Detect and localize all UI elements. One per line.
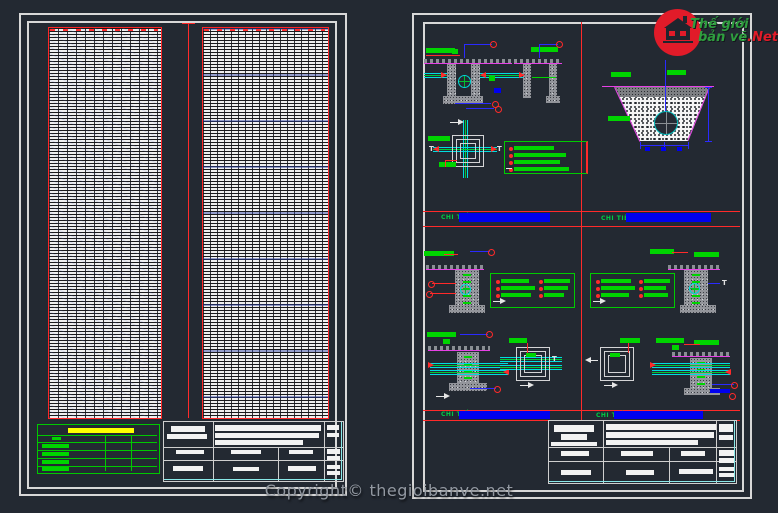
concrete-base (680, 305, 716, 313)
redacted-text (171, 426, 205, 432)
green-marker (526, 353, 536, 357)
rebar-dashes (464, 356, 472, 382)
t-symbol: T (722, 280, 727, 287)
blue-leader (665, 60, 666, 112)
redacted-text (327, 456, 340, 460)
legend-grid-line (38, 458, 157, 459)
table-header-red-text (204, 29, 325, 31)
white-arrow-stem (590, 360, 598, 361)
white-arrow-stem (506, 168, 512, 169)
redacted-text (327, 449, 340, 454)
red-leader (445, 160, 446, 167)
concrete-wall (447, 64, 456, 98)
pipe-opening (460, 284, 471, 295)
red-leader (672, 252, 688, 253)
blue-leader (464, 44, 492, 45)
red-circle-marker (490, 41, 497, 48)
redacted-text (327, 465, 340, 469)
pipe-lines (430, 370, 508, 375)
white-arrow (458, 119, 464, 125)
blue-dim-text (645, 147, 650, 151)
legend-dot (596, 287, 600, 291)
legend-green-bar (644, 279, 670, 283)
concrete-base (449, 383, 487, 391)
rebar-schedule-table-right (202, 27, 329, 419)
redacted-text (215, 440, 303, 445)
blue-marker (494, 88, 501, 93)
white-arrow-stem (604, 385, 612, 386)
legend-green-bar (544, 293, 564, 297)
red-leader (444, 254, 458, 255)
left-title-block (163, 421, 344, 482)
red-circle-marker (731, 382, 738, 389)
red-leader (432, 283, 456, 284)
legend-green-bar (514, 167, 569, 171)
red-arrowhead (725, 369, 731, 375)
redacted-text (719, 473, 734, 477)
blue-dim-tick (688, 142, 689, 149)
redacted-text (719, 467, 734, 471)
pipe-opening (458, 75, 471, 88)
legend-box (590, 273, 675, 308)
legend-box (504, 141, 588, 174)
blue-dim-text (677, 147, 682, 151)
blue-dim-text (661, 147, 666, 151)
title-block-grid (213, 422, 214, 481)
dimension-green-bar (427, 332, 456, 337)
title-block-grid (549, 447, 736, 448)
redacted-text (167, 434, 207, 439)
green-marker (610, 353, 620, 357)
white-arrow-stem (493, 301, 500, 302)
legend-green-bar (544, 279, 570, 283)
red-leader (684, 344, 700, 345)
blue-dim-tick (705, 141, 712, 142)
white-arrow-stem (450, 122, 458, 123)
red-circle-marker (729, 393, 736, 400)
caption-redacted-blue-bar (459, 213, 550, 222)
redacted-text (561, 434, 587, 440)
dimension-green-bar (509, 338, 527, 343)
dimension-green-bar (608, 116, 630, 121)
house-base (663, 41, 693, 43)
caption-redacted-blue-bar (459, 411, 550, 419)
logo-line2-text: bản vẽ (698, 30, 747, 45)
title-block-cyan-edge (164, 479, 342, 480)
legend-dot (539, 280, 543, 284)
legend-dot (509, 161, 513, 165)
redacted-text (215, 425, 321, 431)
title-block-grid (164, 460, 343, 461)
title-block-cyan-edge (734, 421, 735, 482)
manhole-plan-inner (460, 143, 476, 159)
dimension-green-bar (694, 252, 719, 257)
legend-dot (639, 287, 643, 291)
redacted-text (679, 469, 713, 474)
t-symbol: T (429, 146, 434, 153)
legend-green-bar (514, 146, 554, 150)
white-arrow (500, 298, 506, 304)
copyright-watermark: Copyright© thegioibanve.net (265, 481, 514, 500)
legend-grid-line (38, 442, 157, 443)
title-block-grid (164, 447, 343, 448)
house-icon (663, 16, 693, 46)
white-arrow (528, 382, 534, 388)
red-leader (527, 343, 528, 353)
legend-green-bar (601, 293, 629, 297)
redacted-text (606, 440, 698, 445)
white-arrow-stem (436, 396, 444, 397)
legend-dot (596, 280, 600, 284)
red-circle-marker (426, 291, 433, 298)
red-circle-marker (556, 41, 563, 48)
white-arrow (585, 357, 591, 363)
legend-green-bar (42, 460, 69, 464)
table-header-red-text (50, 29, 158, 31)
blue-leader (464, 44, 465, 58)
blue-marker (710, 389, 730, 393)
legend-green-bar (601, 279, 631, 283)
dimension-green-bar (656, 338, 684, 343)
manhole-plan-inner (608, 355, 626, 373)
title-block-grid (549, 461, 736, 462)
redacted-text (561, 451, 589, 456)
green-marker (672, 345, 679, 350)
band-red-line (423, 211, 740, 212)
redacted-text (176, 450, 204, 454)
pipe-opening (689, 283, 700, 294)
legend-box (490, 273, 575, 308)
pipe-lines (652, 363, 730, 368)
redacted-text (719, 435, 733, 440)
legend-grid-line (38, 435, 157, 436)
house-roof (664, 18, 692, 28)
redacted-text (561, 470, 591, 475)
t-symbol: T (497, 146, 502, 153)
red-leader (445, 160, 457, 161)
logo-suffix-text: .Net (747, 30, 778, 45)
concrete-base (546, 96, 560, 103)
dimension-green-bar (611, 72, 631, 77)
redacted-text (215, 433, 319, 438)
green-line (532, 77, 556, 78)
red-arrowhead (441, 72, 447, 78)
red-leader (430, 293, 456, 294)
legend-green-bar (52, 437, 61, 440)
blue-leader (466, 108, 494, 109)
red-tick (182, 23, 195, 24)
legend-green-bar (42, 467, 69, 471)
blue-leader (708, 283, 720, 284)
red-circle-marker (494, 386, 501, 393)
legend-dot (539, 294, 543, 298)
trench-top-line (602, 86, 714, 87)
dimension-green-bar (439, 162, 456, 167)
title-block-grid (716, 421, 717, 483)
t-symbol: T (552, 356, 557, 363)
legend-green-bar (644, 286, 666, 290)
blue-leader (455, 103, 491, 104)
red-leader (426, 55, 460, 56)
legend-dot (509, 147, 513, 151)
red-arrowhead (428, 362, 434, 368)
redacted-text (233, 467, 259, 471)
ground-line (424, 63, 512, 64)
title-block-grid (278, 447, 279, 481)
blue-leader (470, 388, 496, 389)
legend-green-bar (501, 279, 529, 283)
legend-dot (639, 280, 643, 284)
red-circle-marker (488, 249, 495, 256)
trench-pavement-band (613, 87, 712, 97)
blue-leader (470, 251, 490, 252)
blue-leader (460, 334, 488, 335)
rebar-schedule-table-left (48, 27, 162, 419)
house-window (669, 31, 675, 36)
blue-dimension (708, 87, 709, 142)
house-window (680, 31, 686, 36)
redacted-text (173, 466, 203, 471)
logo-text-line2: bản vẽ.Net (698, 31, 778, 44)
legend-green-bar (514, 160, 560, 164)
sheet-center-red-line (581, 22, 582, 420)
dimension-green-bar (650, 249, 674, 254)
green-marker (452, 49, 458, 54)
redacted-text (231, 450, 261, 454)
white-arrow-stem (520, 385, 528, 386)
green-marker (489, 76, 495, 81)
legend-dot (639, 294, 643, 298)
blue-dim-tick (640, 142, 641, 149)
redacted-text (289, 450, 313, 454)
caption-redacted-blue-bar (626, 213, 711, 222)
redacted-text (606, 424, 716, 430)
pipe-lines (652, 370, 730, 375)
title-block-cyan-edge (341, 422, 342, 480)
legend-green-bar (42, 444, 69, 448)
green-legend-table (37, 424, 160, 474)
red-arrowhead (519, 72, 525, 78)
redacted-text (626, 470, 654, 475)
legend-green-bar (42, 452, 69, 456)
red-circle-marker (428, 281, 435, 288)
redacted-text (554, 425, 594, 432)
pipe-circle (654, 111, 678, 135)
band-red-line (423, 226, 740, 227)
redacted-text (719, 424, 733, 432)
dimension-green-bar (428, 136, 450, 141)
legend-dot (539, 287, 543, 291)
redacted-text (719, 458, 734, 463)
legend-green-bar (644, 293, 668, 297)
concrete-wall (549, 64, 557, 98)
redacted-text (621, 451, 653, 456)
title-block-grid (603, 421, 604, 483)
dimension-green-bar (426, 48, 455, 53)
redacted-text (606, 432, 714, 438)
dimension-green-bar (667, 70, 686, 75)
white-arrow (600, 298, 606, 304)
redacted-text (681, 451, 705, 456)
legend-column-line (105, 435, 106, 471)
legend-dot (496, 287, 500, 291)
white-arrow (612, 382, 618, 388)
legend-green-bar (601, 286, 635, 290)
green-marker (443, 339, 450, 344)
blue-dim-tick (705, 87, 712, 88)
ground-line (672, 356, 730, 357)
caption-redacted-blue-bar (614, 411, 703, 419)
concrete-wall (523, 64, 531, 98)
redacted-text (327, 471, 340, 475)
title-block-grid (669, 447, 670, 483)
red-arrowhead (480, 72, 486, 78)
blue-leader (539, 44, 540, 58)
white-arrow-stem (593, 301, 600, 302)
red-circle-marker (486, 331, 493, 338)
red-leader (628, 343, 629, 353)
legend-title-bar (68, 428, 134, 433)
legend-green-bar (514, 153, 566, 157)
concrete-wall (471, 64, 480, 98)
legend-dot (509, 154, 513, 158)
red-circle-marker (495, 106, 502, 113)
cad-drawing-canvas: CHI TIẾT CHI TIẾT CHI TIẾT CHI TIẾT (0, 0, 778, 513)
dimension-green-bar (620, 338, 640, 343)
title-block-cyan-edge (549, 481, 735, 482)
redacted-text (288, 466, 316, 471)
redacted-text (327, 433, 339, 437)
red-arrowhead (650, 362, 656, 368)
right-title-block (548, 420, 737, 484)
title-block-grid (324, 422, 325, 481)
legend-dot (496, 280, 500, 284)
legend-column-line (131, 435, 132, 471)
white-arrow (444, 393, 450, 399)
redacted-text (327, 425, 339, 430)
legend-green-bar (544, 286, 568, 290)
redacted-text (551, 442, 597, 446)
redacted-text (719, 450, 734, 456)
legend-grid-line (38, 450, 157, 451)
legend-green-bar (501, 293, 531, 297)
concrete-base (449, 305, 485, 313)
sheet-divider-red-line (188, 23, 189, 418)
manhole-plan-inner (524, 355, 542, 373)
pipe-lines (430, 363, 508, 368)
legend-green-bar (501, 286, 535, 290)
ground-line (428, 350, 490, 351)
dimension-green-bar (531, 47, 558, 52)
